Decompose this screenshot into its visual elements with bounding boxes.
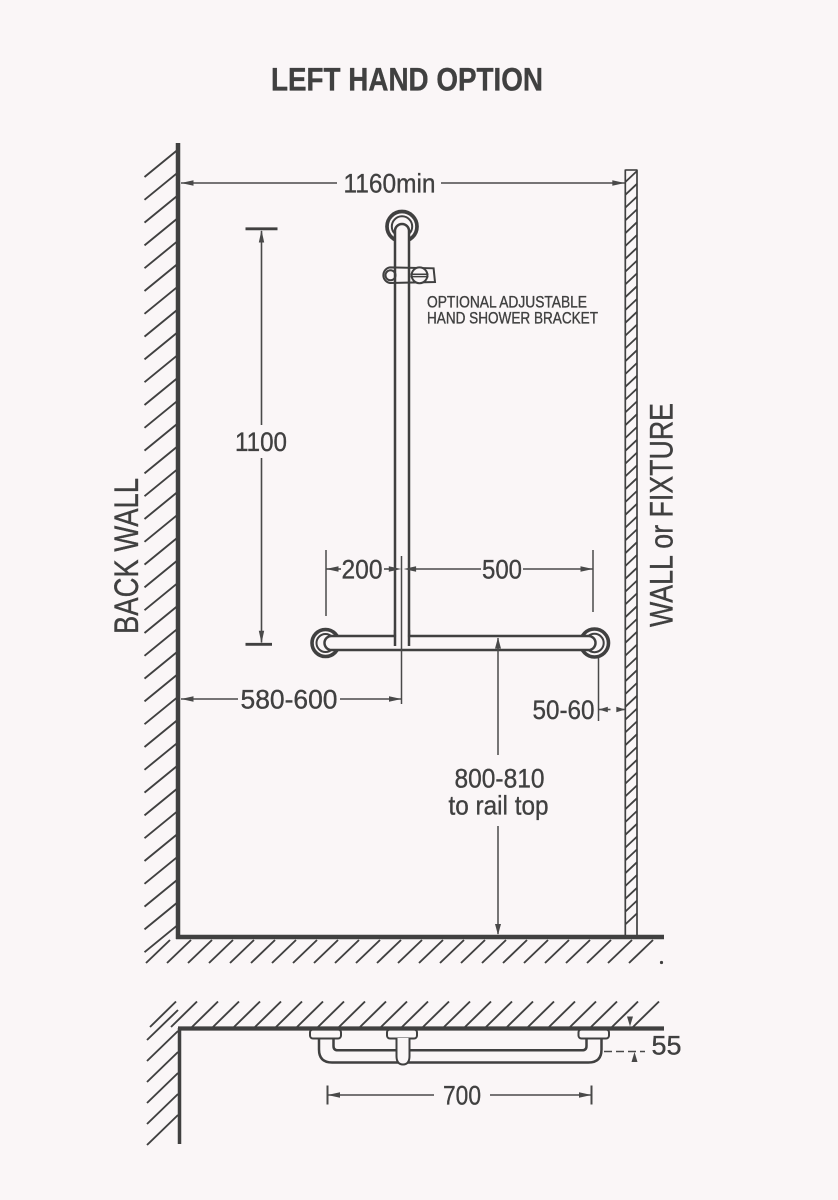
svg-text:LEFT HAND OPTION: LEFT HAND OPTION bbox=[271, 62, 543, 98]
svg-text:50-60: 50-60 bbox=[533, 695, 595, 725]
svg-text:WALL or FIXTURE: WALL or FIXTURE bbox=[644, 403, 680, 627]
svg-text:800-810: 800-810 bbox=[455, 764, 545, 794]
svg-text:580-600: 580-600 bbox=[241, 685, 338, 715]
svg-text:700: 700 bbox=[443, 1081, 481, 1111]
svg-text:55: 55 bbox=[652, 1031, 682, 1061]
svg-text:1100: 1100 bbox=[235, 427, 287, 457]
svg-text:1160min: 1160min bbox=[344, 169, 436, 199]
svg-text:to rail top: to rail top bbox=[449, 791, 549, 821]
svg-text:HAND SHOWER BRACKET: HAND SHOWER BRACKET bbox=[427, 310, 598, 328]
svg-text:500: 500 bbox=[482, 555, 522, 585]
svg-text:BACK WALL: BACK WALL bbox=[108, 478, 146, 634]
svg-text:200: 200 bbox=[342, 555, 383, 585]
